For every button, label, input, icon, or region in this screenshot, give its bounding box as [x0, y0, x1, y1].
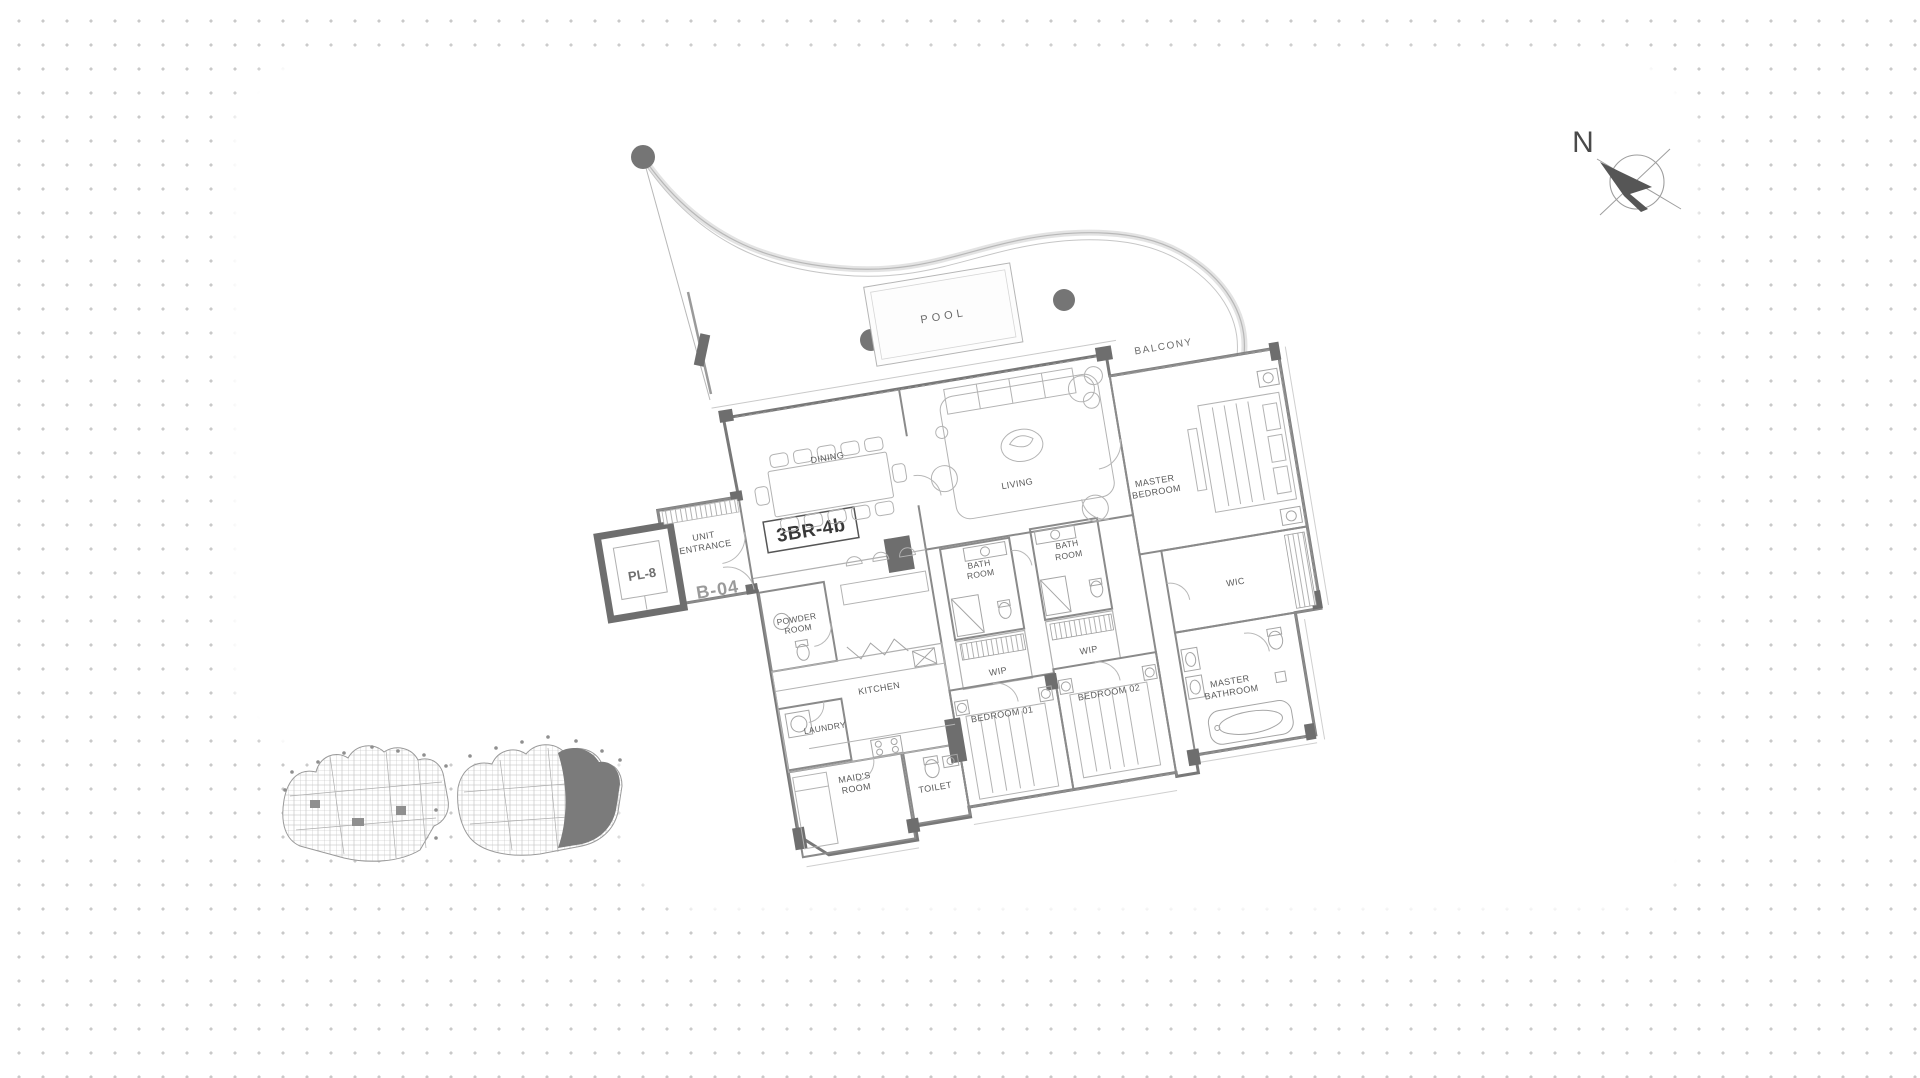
- column-dot: [631, 145, 655, 169]
- pool: POOL: [864, 263, 1023, 366]
- key-plan-left: [283, 746, 449, 862]
- unit-envelope: [645, 326, 1348, 873]
- balcony-label: BALCONY: [1134, 337, 1194, 358]
- column-dot: [1053, 289, 1075, 311]
- compass: N: [1572, 126, 1681, 215]
- elevator-pl8: PL-8: [597, 525, 684, 620]
- compass-north-label: N: [1572, 126, 1594, 159]
- key-plan-right: [458, 745, 622, 856]
- compass-north-arrow-icon: [1600, 162, 1652, 212]
- floor-plan-drawing: N POOL BALCONY: [0, 0, 1920, 1078]
- key-plan-unit-highlight: [558, 748, 620, 848]
